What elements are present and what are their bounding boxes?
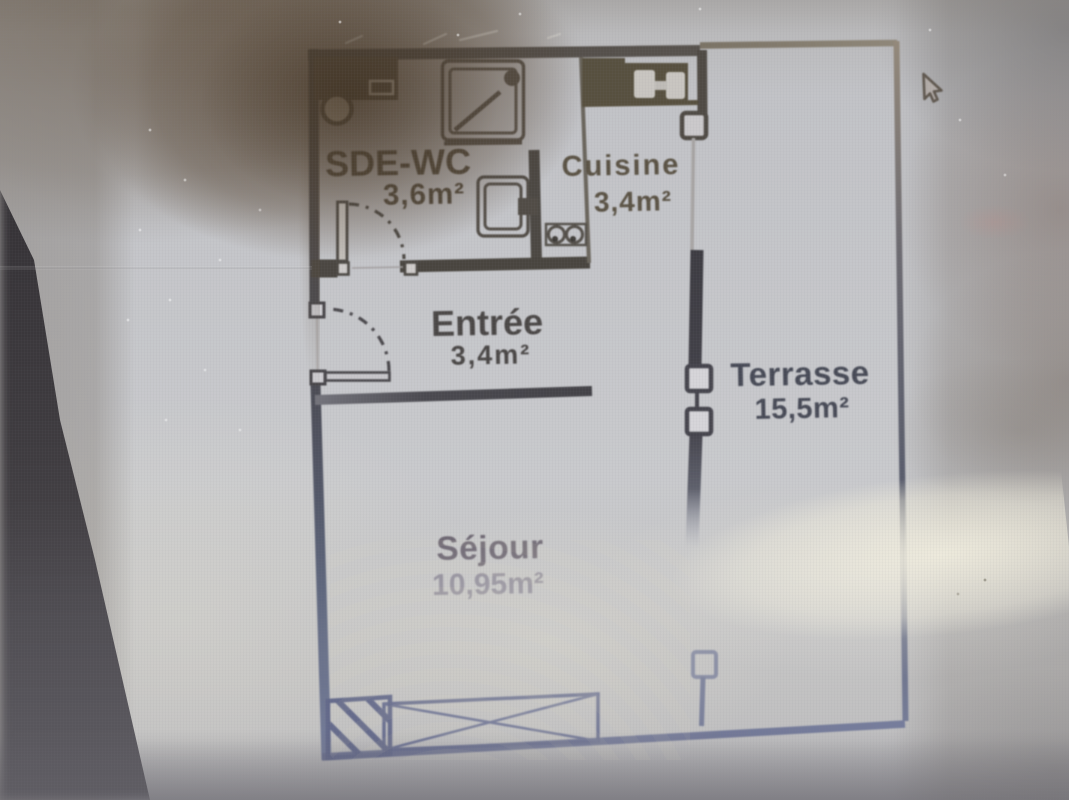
svg-text:3,4m²: 3,4m² (594, 185, 673, 217)
svg-text:10,95m²: 10,95m² (432, 567, 544, 602)
svg-text:3,4m²: 3,4m² (450, 339, 531, 370)
svg-text:Séjour: Séjour (436, 529, 544, 568)
svg-text:Terrasse: Terrasse (730, 354, 870, 393)
svg-text:Cuisine: Cuisine (561, 149, 680, 183)
svg-text:Entrée: Entrée (431, 301, 544, 344)
svg-text:15,5m²: 15,5m² (754, 392, 849, 426)
svg-text:SDE-WC: SDE-WC (325, 141, 472, 185)
svg-text:3,6m²: 3,6m² (383, 177, 466, 211)
